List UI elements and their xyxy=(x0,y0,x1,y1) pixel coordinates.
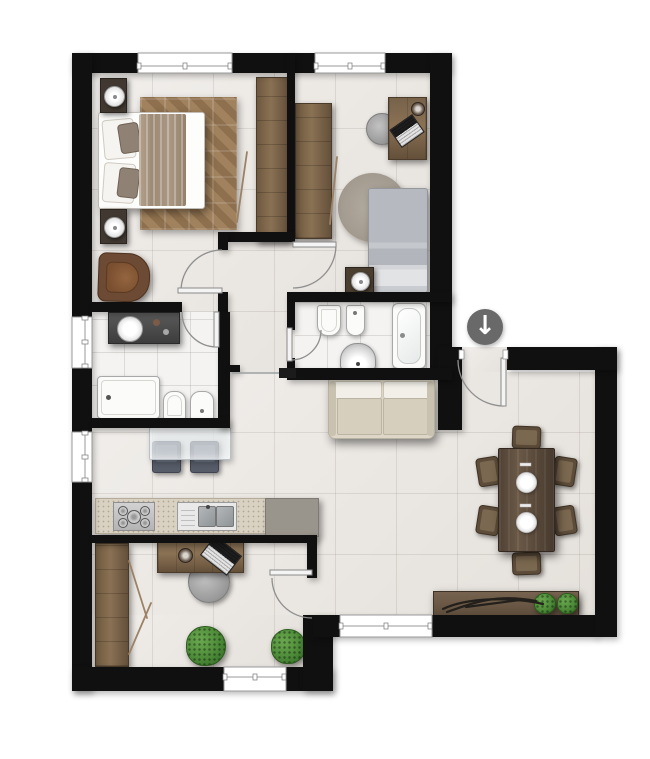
kitchen-sink xyxy=(177,502,237,531)
cup xyxy=(411,102,425,116)
wall-hallway-stub xyxy=(229,365,240,372)
nightstand xyxy=(345,267,374,295)
dining-table xyxy=(498,448,555,552)
washbasin xyxy=(340,343,376,370)
table-lamp xyxy=(104,86,125,107)
wall-kitchen-office xyxy=(92,535,317,543)
wall-bathroom1-bottom xyxy=(92,418,230,428)
shower-tray xyxy=(97,376,160,419)
sink-basin xyxy=(198,506,216,527)
table-lamp xyxy=(351,272,370,291)
toilet xyxy=(317,305,341,336)
peninsula-slab xyxy=(265,498,319,537)
wall-entrance-right xyxy=(507,347,617,370)
bidet-tap xyxy=(353,311,357,315)
sofa-back-cushion xyxy=(333,381,382,399)
wall-entrance-left-stub xyxy=(438,347,462,430)
glass-table xyxy=(149,427,231,460)
toilet-seat xyxy=(167,395,182,416)
wall-exterior-left xyxy=(72,53,92,691)
burner xyxy=(140,518,150,528)
wall-hallway-top xyxy=(228,232,295,242)
laptop xyxy=(389,114,425,148)
toilet-seat xyxy=(321,309,337,332)
washbasin xyxy=(117,316,143,342)
entrance-arrow-badge: ↓ xyxy=(467,309,503,345)
wall-bedroom-partition xyxy=(287,53,295,240)
wall-bathroom1-top xyxy=(92,302,182,312)
bedroom1-wardrobe xyxy=(256,77,289,242)
potted-plant-small xyxy=(534,593,556,614)
bathtub xyxy=(392,303,426,369)
wall-bedroom1-door-jamb xyxy=(218,292,228,312)
floor-entrance-threshold xyxy=(462,347,507,372)
table-lamp xyxy=(104,217,125,238)
bedroom2-desk xyxy=(388,97,427,160)
armchair-cushion xyxy=(105,261,139,293)
pillow xyxy=(116,167,140,199)
sofa-back-cushion xyxy=(383,381,432,399)
office-desk xyxy=(157,538,244,573)
wall-exterior-right-upper xyxy=(430,53,452,372)
nightstand xyxy=(100,78,127,113)
wall-bathroom2-left xyxy=(287,302,295,330)
wall-bathroom2-top xyxy=(287,292,452,302)
sofa xyxy=(328,378,435,439)
bathtub-tap xyxy=(400,333,405,338)
bathroom1-vanity xyxy=(108,312,180,344)
plate xyxy=(516,512,537,533)
plate xyxy=(516,472,537,493)
office-wardrobe xyxy=(95,543,129,667)
bidet xyxy=(346,305,365,336)
dining-chair xyxy=(512,552,542,576)
potted-plant xyxy=(186,626,226,666)
wall-exterior-bottom-left xyxy=(72,667,333,691)
toilet xyxy=(163,391,186,420)
throw-blanket xyxy=(139,114,186,206)
coffee-cup xyxy=(178,548,193,563)
bidet xyxy=(190,391,214,420)
vanity-accessory xyxy=(153,319,160,326)
wall-exterior-top xyxy=(72,53,450,73)
bidet-tap xyxy=(200,409,204,413)
sink-basin xyxy=(216,506,234,527)
dining-chair xyxy=(512,426,542,450)
nightstand xyxy=(100,209,127,244)
basin-tap xyxy=(356,362,360,366)
potted-plant-small xyxy=(557,593,578,614)
sofa-seat-cushion xyxy=(383,398,428,435)
wall-exterior-right-lower xyxy=(595,347,617,637)
gas-hob xyxy=(113,502,155,531)
single-bed xyxy=(368,188,428,293)
sofa-armrest xyxy=(329,381,336,436)
sofa-seat-cushion xyxy=(337,398,382,435)
sofa-armrest xyxy=(427,381,434,436)
wall-office-right xyxy=(307,535,317,578)
bedroom2-wardrobe xyxy=(295,103,332,239)
vanity-accessory xyxy=(163,329,169,335)
shower-drain xyxy=(106,395,111,400)
burner-large xyxy=(127,510,141,524)
sink-tap xyxy=(206,505,210,509)
sink-drainer xyxy=(181,507,195,526)
wall-bathroom2-bottom xyxy=(287,368,452,380)
wall-exterior-bottom-right xyxy=(313,615,597,637)
double-bed xyxy=(98,112,205,209)
potted-plant xyxy=(271,629,306,664)
armchair xyxy=(97,252,151,303)
down-arrow-icon: ↓ xyxy=(474,313,496,339)
burner xyxy=(140,506,150,516)
floor-plan: ↓ xyxy=(0,0,650,759)
wall-bedroom1-door-jamb xyxy=(218,232,228,250)
